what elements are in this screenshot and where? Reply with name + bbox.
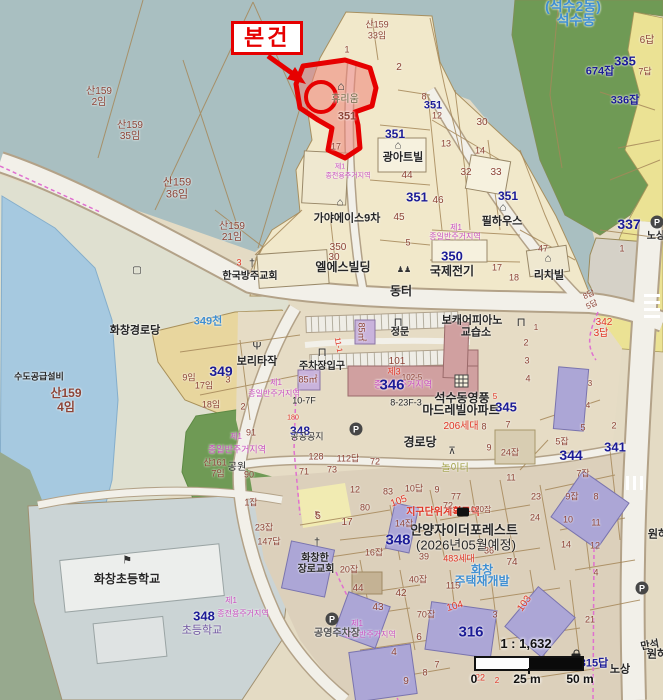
scale-bar: 1 : 1,632 0 25 m 50 m [455,636,655,694]
subject-callout-label: 본건 [244,25,290,50]
scale-tick-50: 50 m [566,672,593,686]
scale-bar-graphic [474,656,584,671]
map-base-layer [0,0,663,700]
scale-tick-25: 25 m [513,672,540,686]
scale-ratio: 1 : 1,632 [471,636,581,651]
scale-bar-white-half [476,658,529,669]
scale-bar-black-half [529,658,582,669]
cadastral-map[interactable]: 산1592임산15935임산15936임산15921임산15933임산1594임… [0,0,663,700]
subject-callout: 본건 [231,21,303,55]
scale-tick-0: 0 [471,672,478,686]
